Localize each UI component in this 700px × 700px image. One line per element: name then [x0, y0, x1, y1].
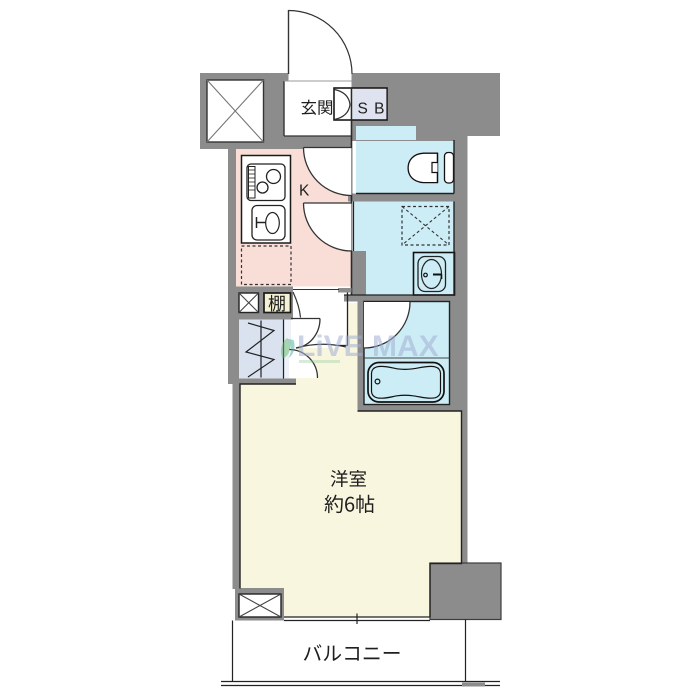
svg-text:K: K	[299, 183, 310, 200]
svg-text:S B: S B	[358, 101, 386, 118]
svg-text:LiVE MAX: LiVE MAX	[297, 330, 439, 363]
